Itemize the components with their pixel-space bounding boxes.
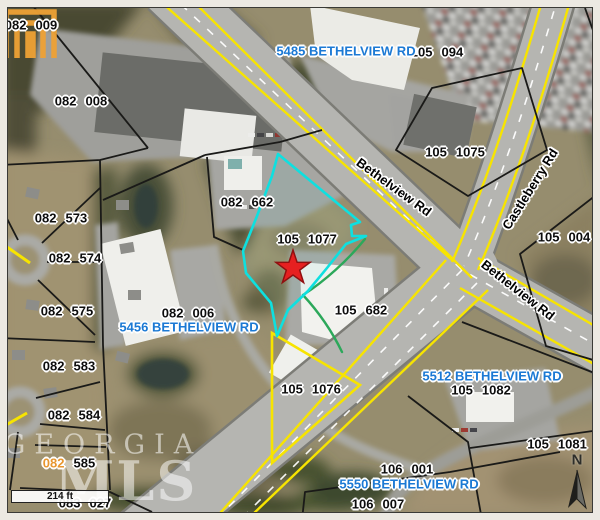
north-arrow: N bbox=[560, 452, 594, 514]
map-screenshot: GEORGIA MLS 0820090820081050941051075105… bbox=[0, 0, 600, 520]
north-arrow-icon bbox=[560, 452, 594, 514]
scale-bar: 214 ft bbox=[11, 490, 109, 503]
map-canvas[interactable]: GEORGIA MLS 0820090820081050941051075105… bbox=[0, 0, 600, 520]
map-graphics bbox=[0, 0, 600, 520]
scale-bar-label: 214 ft bbox=[47, 491, 73, 502]
